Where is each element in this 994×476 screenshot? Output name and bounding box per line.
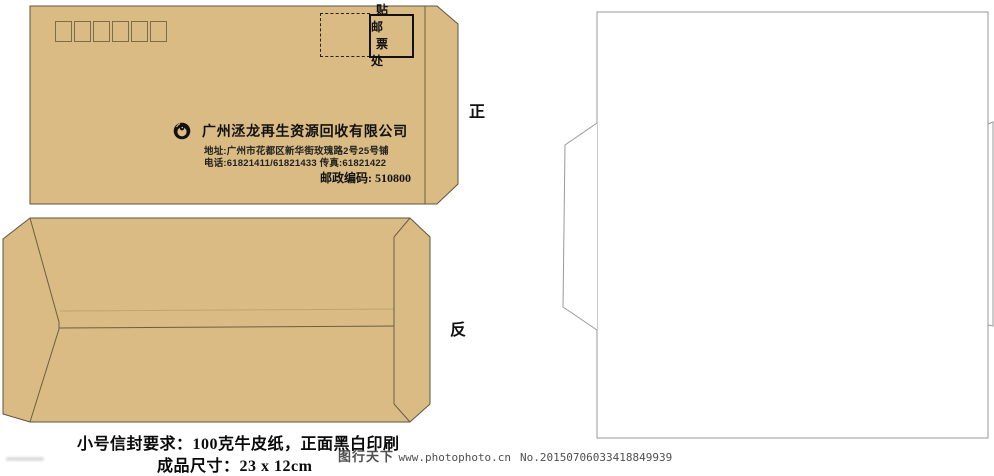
stamp-here-row1: 贴 邮 [371, 2, 412, 36]
dieline-right-flap-clipped [988, 122, 993, 326]
dieline-body-rect [597, 12, 988, 438]
company-dragon-logo-icon [173, 122, 191, 140]
postal-code-box [112, 21, 129, 42]
dieline-left-flap [563, 123, 597, 330]
envelope-design-proof: { "colors": { "kraft_paper": "#d9bb83", … [0, 0, 994, 465]
stamp-here-row2: 票 处 [371, 36, 412, 70]
watermark-serial: No.20150706033418849939 [520, 451, 672, 464]
company-name: 广州洆龙再生资源回收有限公司 [202, 121, 408, 141]
company-phone-fax: 电话:61821411/61821433 传真:61821422 [204, 155, 386, 169]
postal-code-box [55, 21, 72, 42]
stamp-here-box: 贴 邮 票 处 [369, 14, 414, 58]
watermark: 图行天下 www.photophoto.cn No.20150706033418… [338, 446, 672, 466]
back-side-label: 反 [450, 316, 466, 340]
stamp-placement-dashed-box [320, 13, 370, 57]
watermark-brand: 图行天下 [338, 449, 394, 464]
postal-code-box [150, 21, 167, 42]
shapes-layer [0, 0, 994, 465]
watermark-site: www.photophoto.cn [398, 451, 511, 464]
postal-code-text: 邮政编码: 510800 [320, 169, 411, 186]
spec-note-line2-clipped: 成品尺寸：23 x 12cm [157, 452, 312, 476]
postal-code-box [93, 21, 110, 42]
postal-code-box [131, 21, 148, 42]
corner-smudge [6, 457, 44, 461]
postal-code-box [74, 21, 91, 42]
front-side-label: 正 [469, 98, 485, 122]
back-envelope-shape [3, 218, 430, 422]
